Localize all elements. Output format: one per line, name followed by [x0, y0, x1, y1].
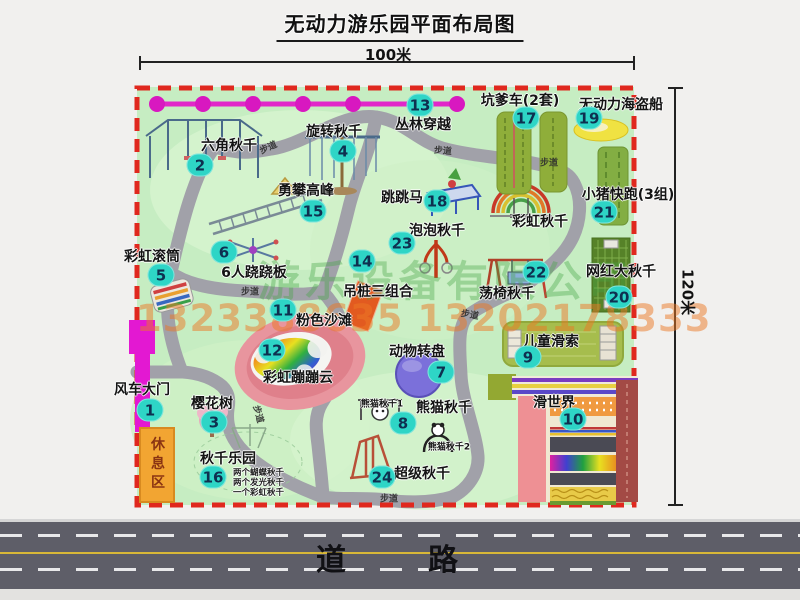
- road-label: 道 路: [0, 535, 800, 579]
- attraction-badge-11: 11: [270, 299, 297, 322]
- attraction-badge-3: 3: [201, 411, 228, 434]
- attraction-label-22: 荡椅秋千: [479, 283, 535, 303]
- attraction-label-6: 6人跷跷板: [221, 262, 287, 282]
- swing-paradise-notes: 两个蝴蝶秋千两个发光秋千一个彩虹秋千: [233, 468, 284, 498]
- attraction-label-24: 超级秋千: [394, 463, 450, 483]
- attraction-badge-6: 6: [211, 241, 238, 264]
- park-map-screenshot: 无动力游乐园平面布局图 100米 120米 游乐设备有限公司 132338863…: [0, 0, 800, 600]
- attraction-label-12: 彩虹蹦蹦云: [263, 367, 333, 387]
- attraction-badge-17: 17: [513, 107, 540, 130]
- attraction-badge-20: 20: [606, 286, 633, 309]
- attraction-label-8: 熊猫秋千: [416, 397, 472, 417]
- map-sublabel: 熊猫秋千1: [361, 397, 403, 410]
- attraction-badge-12: 12: [259, 339, 286, 362]
- attraction-label-23: 泡泡秋千: [409, 220, 465, 240]
- page-margin: [0, 589, 800, 600]
- attraction-badge-13: 13: [407, 94, 434, 117]
- attraction-label-15: 勇攀高峰: [278, 180, 334, 200]
- page-title: 无动力游乐园平面布局图: [277, 8, 524, 42]
- road: 道 路: [0, 519, 800, 589]
- footpath-label: 步道: [433, 143, 452, 158]
- attraction-badge-21: 21: [591, 201, 618, 224]
- attraction-label-2: 六角秋千: [201, 135, 257, 155]
- attraction-label-18: 跳跳马: [381, 187, 423, 207]
- dimension-height-label: 120米: [678, 269, 699, 315]
- footpath-label: 步道: [241, 285, 259, 298]
- swing-paradise-note: 一个彩虹秋千: [233, 488, 284, 498]
- swing-paradise-note: 两个发光秋千: [233, 478, 284, 488]
- attraction-label-11: 粉色沙滩: [296, 310, 352, 330]
- attraction-badge-1: 1: [137, 399, 164, 422]
- map-sublabel: 熊猫秋千2: [428, 440, 470, 453]
- swing-paradise-note: 两个蝴蝶秋千: [233, 468, 284, 478]
- attraction-badge-10: 10: [560, 408, 587, 431]
- map-sublabel: 彩虹秋千: [512, 211, 568, 231]
- attraction-label-14: 吊桩三组合: [343, 281, 413, 301]
- attraction-badge-7: 7: [428, 361, 455, 384]
- attraction-label-5: 彩虹滚筒: [124, 246, 180, 266]
- attraction-badge-19: 19: [576, 107, 603, 130]
- dimension-width-label: 100米: [365, 44, 411, 65]
- attraction-badge-15: 15: [300, 200, 327, 223]
- attraction-badge-4: 4: [330, 140, 357, 163]
- attraction-badge-24: 24: [369, 466, 396, 489]
- attraction-badge-8: 8: [390, 412, 417, 435]
- attraction-badge-9: 9: [515, 346, 542, 369]
- attraction-badge-23: 23: [389, 232, 416, 255]
- attraction-label-13: 丛林穿越: [395, 114, 451, 134]
- attraction-badge-18: 18: [424, 190, 451, 213]
- attraction-label-1: 风车大门: [114, 379, 170, 399]
- attraction-badge-2: 2: [187, 154, 214, 177]
- footpath-label: 步道: [380, 492, 398, 505]
- footpath-label: 步道: [540, 156, 558, 169]
- attraction-badge-16: 16: [200, 466, 227, 489]
- attraction-badge-22: 22: [523, 261, 550, 284]
- attraction-badge-14: 14: [349, 250, 376, 273]
- rest-area-label: 休息区: [147, 437, 167, 494]
- attraction-badge-5: 5: [148, 264, 175, 287]
- attraction-label-4: 旋转秋千: [306, 121, 362, 141]
- attraction-label-20: 网红大秋千: [586, 261, 656, 281]
- attraction-label-7: 动物转盘: [389, 341, 445, 361]
